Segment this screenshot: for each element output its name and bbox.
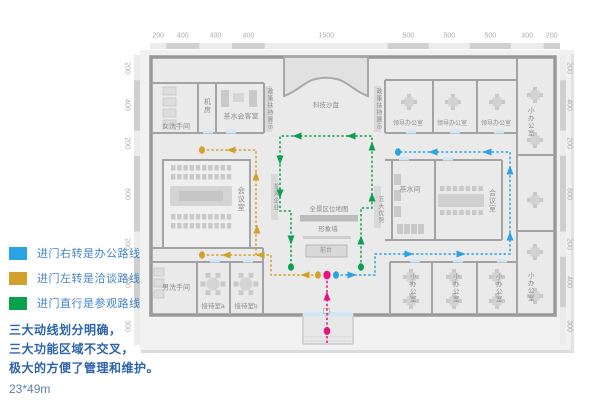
note-line: 三大功能区域不交叉， xyxy=(9,340,159,359)
door-mark xyxy=(443,157,453,161)
dim-label-top: 400 xyxy=(521,33,533,40)
room-label-small_office: 小办公室 xyxy=(494,273,501,303)
room-label-leader_office: 领导办公室 xyxy=(437,121,467,127)
legend-item-office-route: 进门右转是办公路线 xyxy=(9,246,159,260)
room-label-small_office: 小办公室 xyxy=(408,273,415,303)
dim-label-side: 600 xyxy=(124,188,131,200)
dim-label-top: 500 xyxy=(402,33,414,40)
door-mark xyxy=(243,259,253,263)
door-mark xyxy=(203,130,213,134)
dim-label-side: 400 xyxy=(124,100,131,112)
route-endpoint xyxy=(288,263,294,271)
dim-label-side: 200 xyxy=(124,62,131,74)
room-label-leader_office: 领导办公室 xyxy=(393,121,423,127)
legend-label: 进门直行是参观路线 xyxy=(37,295,141,311)
room-label-reception_b: 接待室b xyxy=(234,304,257,311)
room-label-image_wall: 形象墙 xyxy=(318,227,338,234)
description-notes: 三大动线划分明确， 三大功能区域不交叉， 极大的方便了管理和维护。 xyxy=(9,321,159,378)
dim-label-top: 500 xyxy=(484,33,496,40)
room-label-five_advantages: 五大优势 xyxy=(377,196,383,224)
room-label-small_office: 小办公室 xyxy=(526,107,533,137)
door-mark xyxy=(410,259,420,263)
route-endpoint xyxy=(324,327,330,335)
room-label-front_desk: 前台 xyxy=(320,248,332,254)
door-mark xyxy=(497,259,507,263)
route-endpoint xyxy=(199,146,205,154)
dim-label-side: 600 xyxy=(566,188,573,200)
dim-label-top: 400 xyxy=(210,33,222,40)
dim-label-top: 1500 xyxy=(319,33,335,40)
talk-route-swatch xyxy=(9,272,27,285)
floor-plan-infographic: 进门右转是办公路线 进门左转是洽谈路线 进门直行是参观路线 三大动线划分明确， … xyxy=(0,0,600,400)
dim-label-side: 200 xyxy=(124,137,131,149)
route-endpoint xyxy=(315,271,321,279)
room-label-reception_a: 接待室a xyxy=(201,304,224,311)
door-mark xyxy=(450,130,460,134)
note-line: 三大动线划分明确， xyxy=(9,321,159,340)
dim-label-side: 200 xyxy=(566,137,573,149)
room-label-tech_sandbox: 科技沙盘 xyxy=(313,103,339,110)
legend-item-talk-route: 进门左转是洽谈路线 xyxy=(9,271,159,285)
door-mark xyxy=(453,259,463,263)
room-label-meeting_left: 会议室 xyxy=(237,186,245,212)
room-label-leader_office: 领导办公室 xyxy=(481,121,511,127)
legend: 进门右转是办公路线 进门左转是洽谈路线 进门直行是参观路线 三大动线划分明确， … xyxy=(9,246,159,396)
room-label-policy_left: 政策扶持展示 xyxy=(266,88,272,130)
dim-label-side: 200 xyxy=(566,62,573,74)
room-label-small_office: 小办公室 xyxy=(526,272,533,302)
room-label-policy_right: 政策扶持展示 xyxy=(375,88,381,130)
door-mark xyxy=(399,157,409,161)
door-mark xyxy=(406,130,416,134)
office-route-swatch xyxy=(9,247,27,260)
visit-route-swatch xyxy=(9,297,27,310)
panorama-map-wall xyxy=(300,215,358,222)
dim-label-side: 400 xyxy=(124,276,131,288)
note-line: 极大的方便了管理和维护。 xyxy=(9,359,159,378)
route-endpoint xyxy=(333,271,339,279)
room-label-wc_women: 女洗手间 xyxy=(162,124,190,131)
room-label-wc_men: 男洗手间 xyxy=(162,285,190,292)
building-size-label: 23*49m xyxy=(9,382,159,396)
dim-label-top: 400 xyxy=(177,33,189,40)
route-endpoint xyxy=(199,251,205,259)
room-label-meeting_right: 会议室 xyxy=(489,189,496,213)
route-endpoint xyxy=(395,148,401,156)
image-wall xyxy=(303,236,351,239)
door-mark xyxy=(226,130,236,134)
dim-label-side: 200 xyxy=(566,238,573,250)
route-endpoint xyxy=(358,263,364,271)
entrance-door xyxy=(303,312,353,317)
dim-label-side: 300 xyxy=(124,320,131,332)
door-mark xyxy=(210,259,220,263)
dim-label-top: 200 xyxy=(546,33,558,40)
room-label-server_room: 机房 xyxy=(204,98,211,114)
dim-label-side: 400 xyxy=(566,100,573,112)
room-label-tea_right: 茶水间 xyxy=(400,187,421,194)
room-label-small_office: 小办公室 xyxy=(451,273,458,303)
dim-label-side: 200 xyxy=(124,238,131,250)
room-label-panorama_map: 全景区位地图 xyxy=(310,207,349,214)
dim-label-side: 400 xyxy=(566,276,573,288)
route-endpoint xyxy=(323,271,330,280)
dim-label-top: 500 xyxy=(443,33,455,40)
room-label-tea_reception: 茶水会客室 xyxy=(224,114,259,121)
dim-label-top: 200 xyxy=(152,33,164,40)
door-mark xyxy=(494,130,504,134)
room-label-leading_firms: 龙头企业 xyxy=(272,183,278,211)
dim-label-top: 400 xyxy=(243,33,255,40)
legend-item-visit-route: 进门直行是参观路线 xyxy=(9,296,159,310)
dim-label-side: 300 xyxy=(566,320,573,332)
